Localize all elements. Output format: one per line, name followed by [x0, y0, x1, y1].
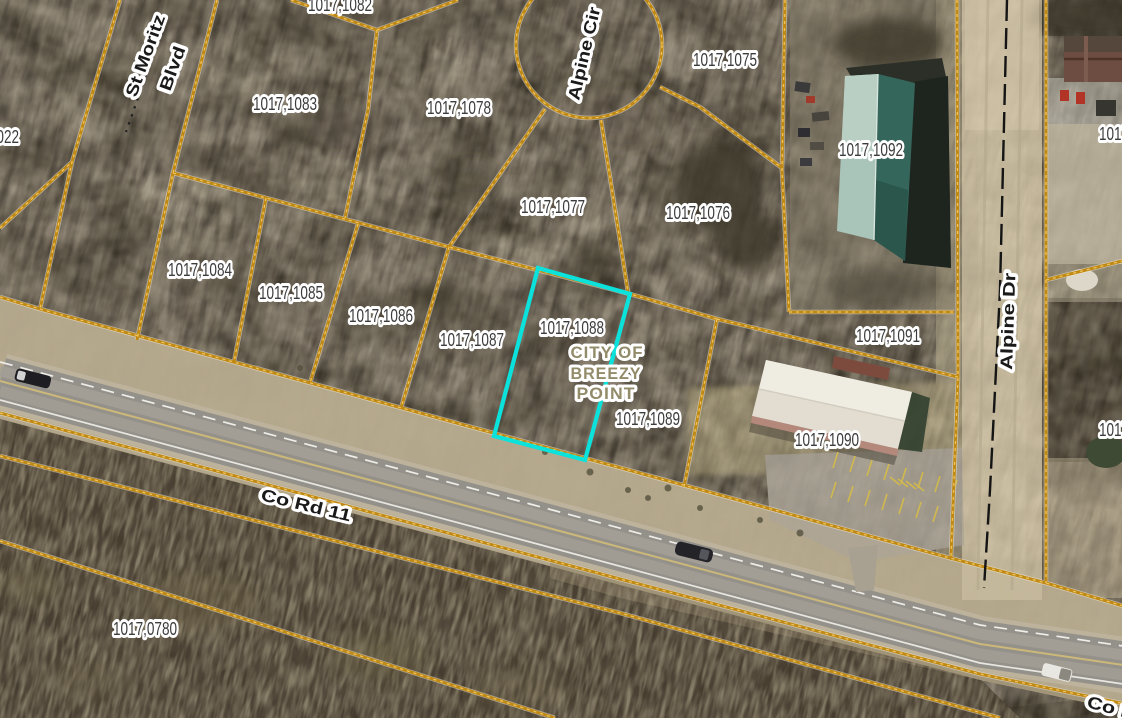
svg-text:1017,1075: 1017,1075	[693, 49, 757, 70]
svg-text:1017,1090: 1017,1090	[795, 429, 859, 450]
svg-text:1017,1078: 1017,1078	[427, 97, 491, 118]
svg-text:1017,1085: 1017,1085	[259, 282, 323, 303]
svg-text:1017,1087: 1017,1087	[440, 329, 504, 350]
svg-text:1017,1086: 1017,1086	[349, 305, 413, 326]
svg-text:1017,1091: 1017,1091	[856, 325, 920, 346]
svg-text:1017,1089: 1017,1089	[616, 408, 680, 429]
svg-text:CITY OF: CITY OF	[571, 343, 644, 362]
svg-text:BREEZY: BREEZY	[571, 364, 642, 383]
svg-text:POINT: POINT	[577, 384, 636, 403]
svg-text:Alpine Dr: Alpine Dr	[997, 272, 1019, 370]
svg-text:1017,1084: 1017,1084	[168, 259, 232, 280]
svg-text:1017,1077: 1017,1077	[521, 196, 585, 217]
svg-text:1017,0780: 1017,0780	[113, 618, 177, 639]
svg-text:1017,1083: 1017,1083	[253, 93, 317, 114]
svg-text:1017,1088: 1017,1088	[540, 317, 604, 338]
svg-text:1017,1092: 1017,1092	[839, 139, 903, 160]
svg-text:1017,1022: 1017,1022	[0, 126, 19, 147]
svg-text:1017,1082: 1017,1082	[308, 0, 372, 15]
svg-text:1017,1093: 1017,1093	[1099, 123, 1122, 144]
svg-text:1017,1023: 1017,1023	[1099, 419, 1122, 440]
svg-text:1017,1076: 1017,1076	[666, 202, 730, 223]
